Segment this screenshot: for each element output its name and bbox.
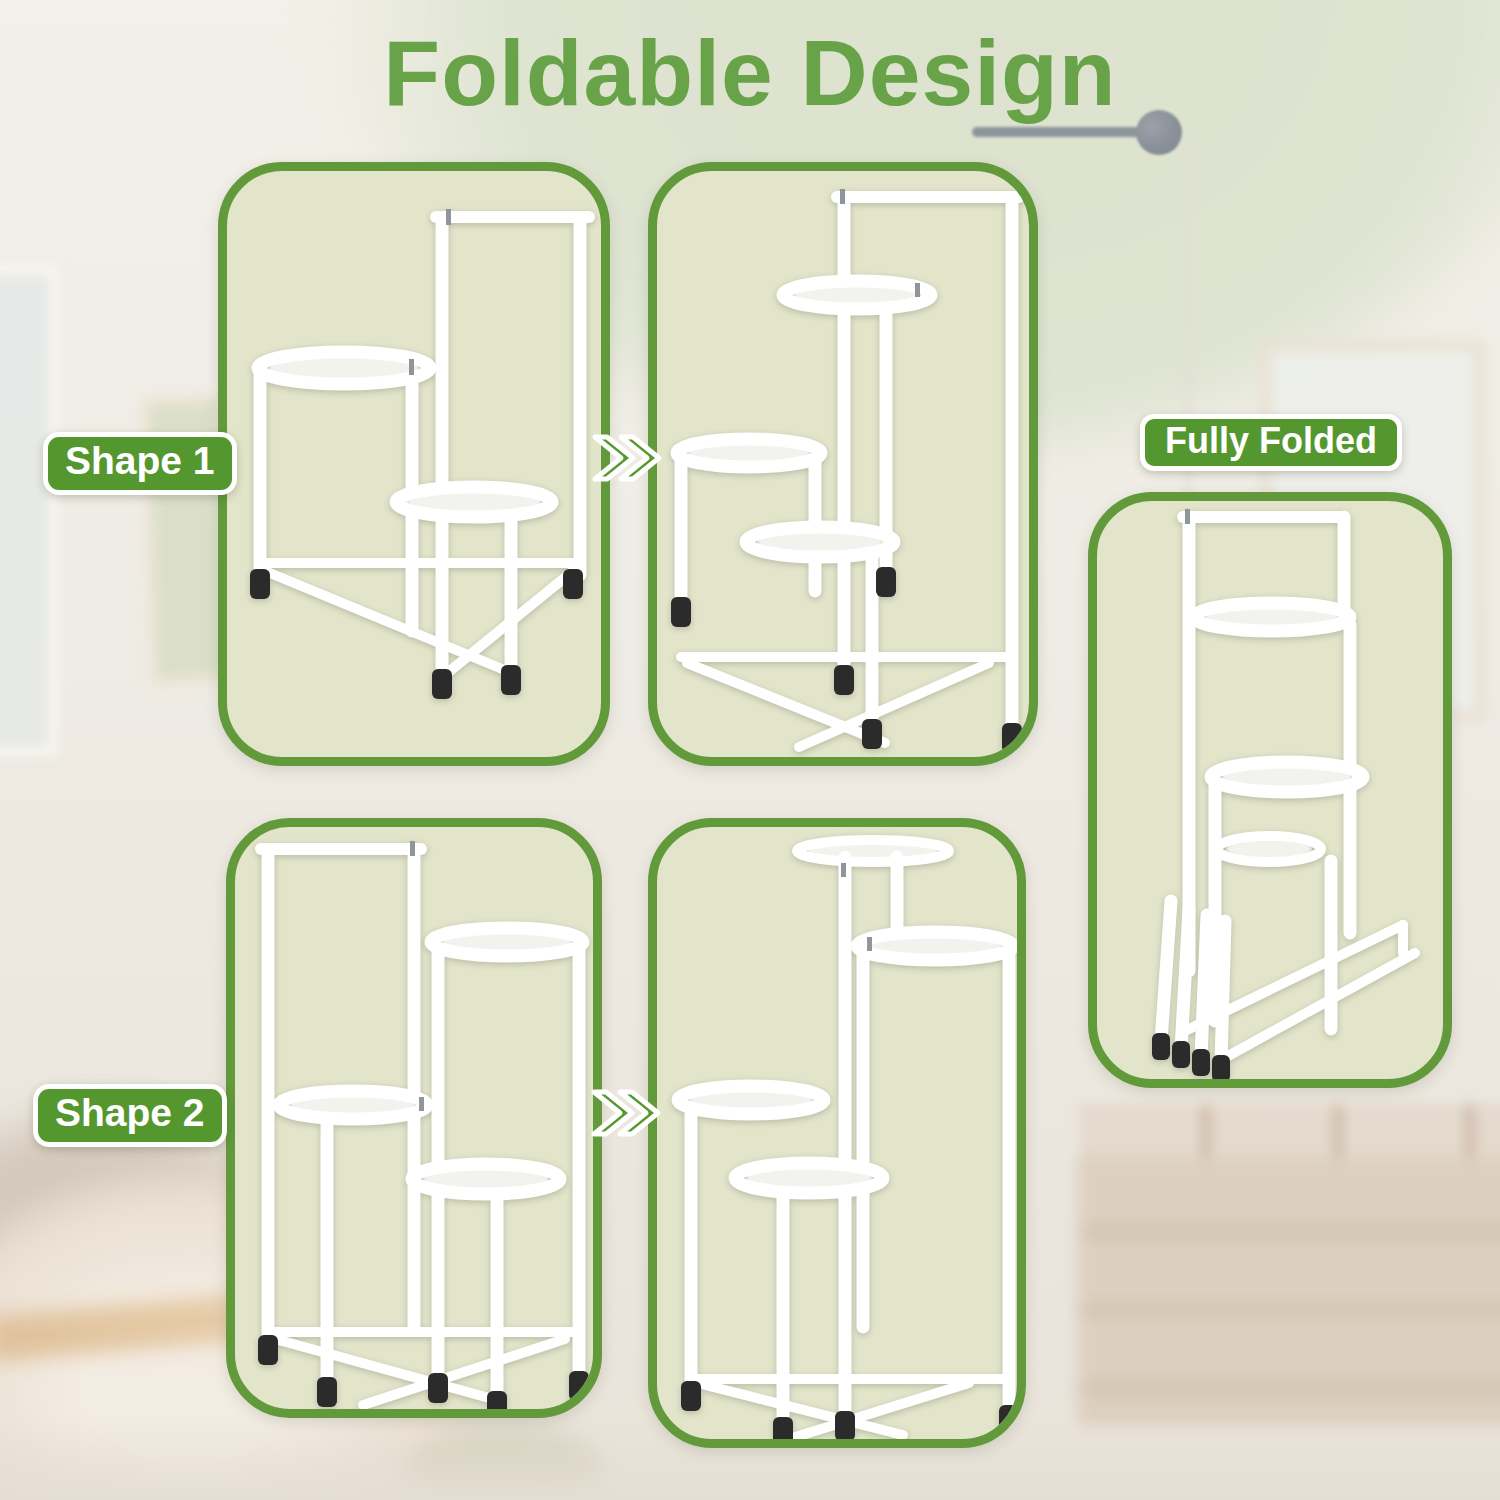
double-chevron-right-icon bbox=[587, 1082, 665, 1144]
tray-top bbox=[783, 281, 931, 309]
shape2-badge: Shape 2 bbox=[33, 1084, 227, 1147]
tray-top bbox=[797, 840, 949, 862]
tray-low bbox=[412, 1164, 560, 1194]
background-cabinet-doors bbox=[1080, 1104, 1500, 1166]
plant-stand-shape1-unfolded-illustration bbox=[227, 171, 601, 757]
panel-shape1-folding bbox=[648, 162, 1038, 766]
tray-middle bbox=[678, 1086, 824, 1114]
tray-low bbox=[746, 527, 894, 557]
tray-middle bbox=[258, 352, 430, 384]
background-curtain-rod bbox=[972, 127, 1142, 137]
tray-top bbox=[1194, 603, 1350, 631]
plant-stand-fully-folded-illustration bbox=[1097, 501, 1443, 1079]
tray-middle bbox=[677, 439, 821, 467]
tray-middle bbox=[1211, 762, 1363, 792]
plant-stand-shape1-folding-illustration bbox=[657, 171, 1029, 757]
panel-shape2-folding bbox=[648, 818, 1026, 1448]
panel-fully-folded bbox=[1088, 492, 1452, 1088]
plant-stand-shape2-unfolded-illustration bbox=[235, 827, 593, 1409]
tray-middle bbox=[279, 1091, 427, 1119]
background-cabinet bbox=[1078, 1158, 1500, 1426]
tray-low bbox=[1217, 836, 1321, 862]
tray-low bbox=[735, 1163, 883, 1193]
background-picture-frame-left bbox=[0, 266, 58, 756]
panel-shape2-unfolded bbox=[226, 818, 602, 1418]
page-title: Foldable Design bbox=[0, 20, 1500, 127]
tray-low bbox=[396, 487, 552, 517]
fully-folded-badge: Fully Folded bbox=[1140, 414, 1402, 471]
tray-upper bbox=[857, 932, 1013, 960]
product-infographic: Foldable Design bbox=[0, 0, 1500, 1500]
double-chevron-right-icon bbox=[588, 427, 666, 489]
plant-stand-shape2-folding-illustration bbox=[657, 827, 1017, 1439]
panel-shape1-unfolded bbox=[218, 162, 610, 766]
shape1-badge: Shape 1 bbox=[43, 432, 237, 495]
tray-top bbox=[431, 928, 583, 956]
